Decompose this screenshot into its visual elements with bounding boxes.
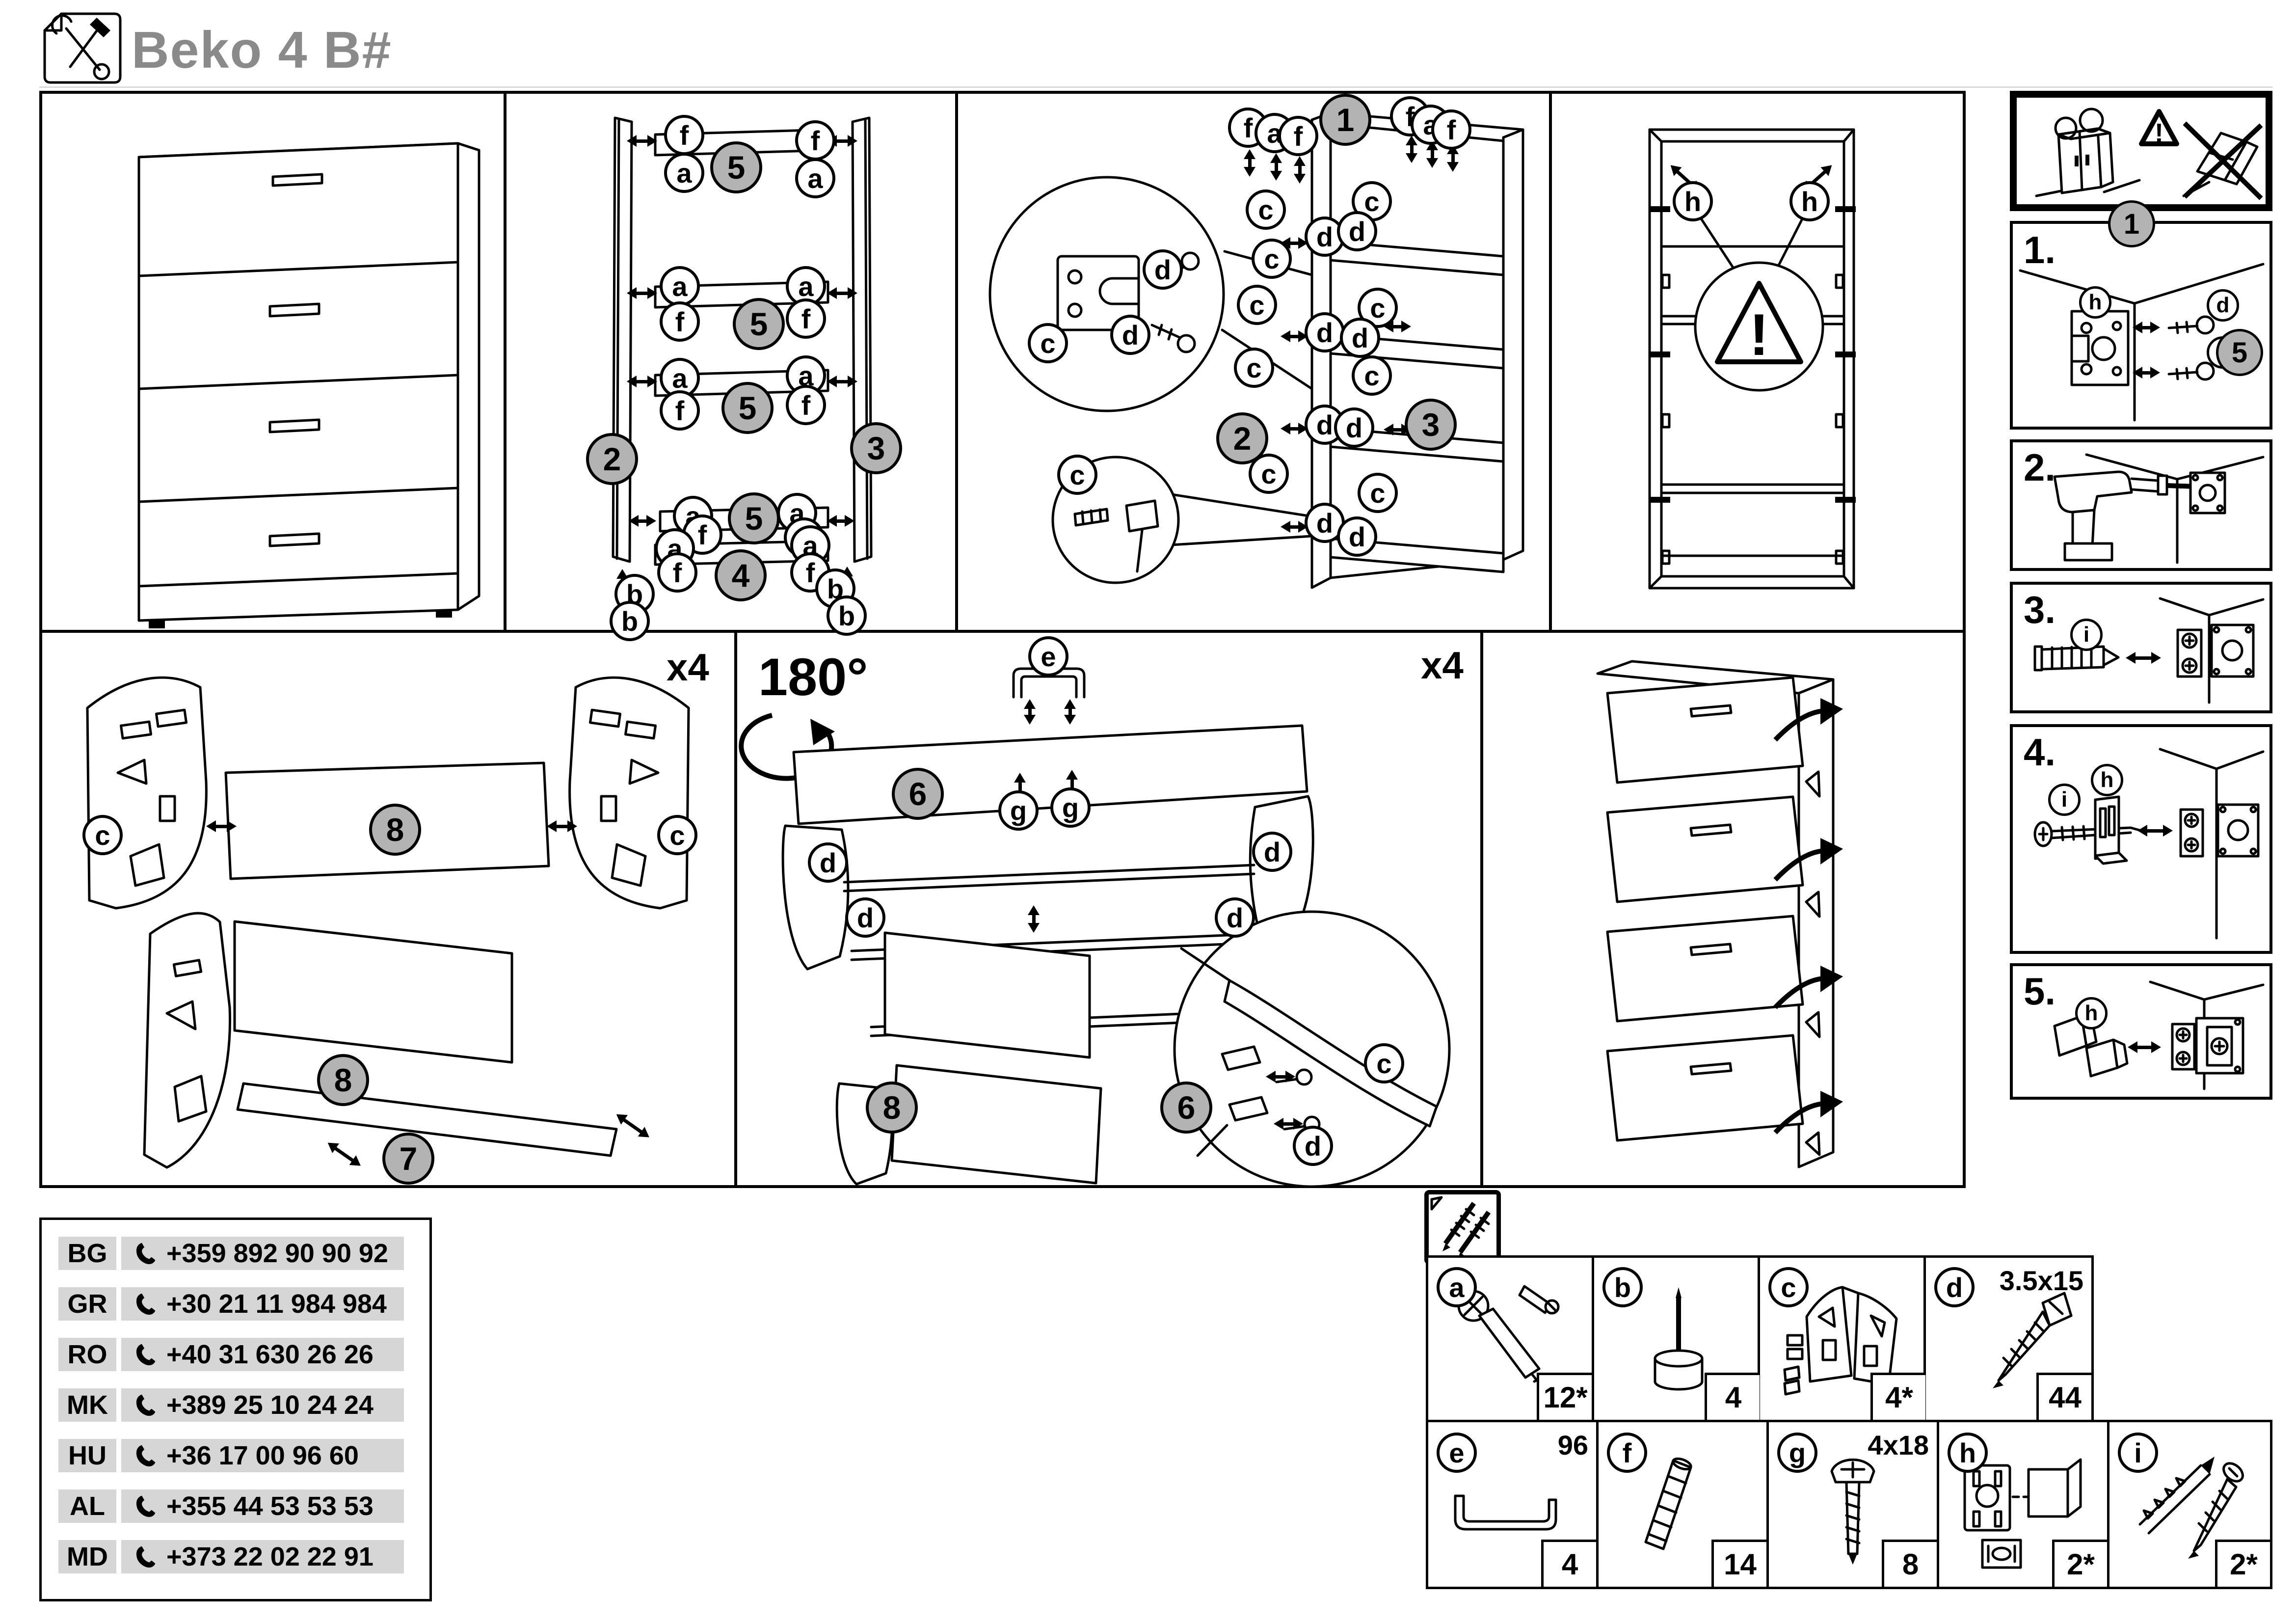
label-a-circle: a xyxy=(795,158,835,198)
grid-divider xyxy=(1549,91,1552,632)
rotate-180-label: 180° xyxy=(758,646,868,707)
label-d-circle: d xyxy=(1215,897,1255,938)
grid-divider xyxy=(1480,630,1483,1188)
arrow xyxy=(2141,829,2169,833)
arrow xyxy=(1284,427,1304,431)
part-f-qty: 14 xyxy=(1711,1540,1766,1587)
repeat-x4: x4 xyxy=(1421,643,1464,688)
label-d-circle: d xyxy=(845,897,885,938)
part-3-circle: 3 xyxy=(1405,399,1457,451)
part-cell-i: i 2* xyxy=(2107,1420,2272,1589)
label-d-circle: d xyxy=(1334,407,1374,448)
part-e-qty: 4 xyxy=(1541,1540,1596,1587)
phone-icon xyxy=(132,1291,158,1317)
arrow xyxy=(1284,525,1304,529)
anti-tip-warning-drawing xyxy=(2017,98,2266,204)
phone-number-cell: +355 44 53 53 53 xyxy=(121,1489,404,1523)
label-a-circle: a xyxy=(664,153,704,193)
part-e-size: 96 xyxy=(1558,1429,1588,1461)
label-f-circle: f xyxy=(795,120,835,161)
label-f-circle: f xyxy=(664,115,704,155)
country-code: HU xyxy=(58,1439,116,1472)
country-code: GR xyxy=(58,1287,116,1321)
label-d-circle: d xyxy=(1337,516,1377,557)
label-c-circle: c xyxy=(1364,1043,1404,1083)
phone-number: +355 44 53 53 53 xyxy=(166,1491,374,1521)
country-code: BG xyxy=(58,1237,116,1270)
phone-number: +30 21 11 984 984 xyxy=(166,1289,387,1319)
part-cell-g: g 4x18 8 xyxy=(1766,1420,1939,1589)
country-code: AL xyxy=(58,1489,116,1523)
label-c-circle: c xyxy=(1237,285,1277,325)
part-3-circle: 3 xyxy=(850,422,902,474)
instruction-sheet: Beko 4 B# xyxy=(0,0,2296,1624)
part-d-size: 3.5x15 xyxy=(2000,1265,2083,1297)
phone-number-cell: +359 892 90 90 92 xyxy=(121,1237,404,1270)
phone-icon xyxy=(132,1544,158,1570)
grid-divider xyxy=(955,91,958,632)
part-b-label: b xyxy=(1602,1267,1643,1307)
part-8-circle: 8 xyxy=(317,1054,369,1106)
repeat-x4: x4 xyxy=(667,645,709,690)
arrow xyxy=(210,825,233,828)
part-b-qty: 4 xyxy=(1705,1373,1760,1420)
panel-cabinet-front xyxy=(43,94,502,628)
phone-number: +40 31 630 26 26 xyxy=(166,1339,374,1370)
arrow xyxy=(551,825,573,828)
phone-number: +359 892 90 90 92 xyxy=(166,1238,388,1269)
part-d-qty: 44 xyxy=(2036,1373,2091,1420)
phone-number: +373 22 02 22 91 xyxy=(166,1542,374,1572)
label-a-circle: a xyxy=(660,266,700,306)
phone-icon xyxy=(132,1493,158,1519)
part-8-circle: 8 xyxy=(369,804,421,856)
panel-rear-view: h h ! xyxy=(1553,94,1962,628)
part-8-circle: 8 xyxy=(866,1082,918,1134)
part-7-circle: 7 xyxy=(382,1133,434,1185)
part-g-size: 4x18 xyxy=(1868,1429,1929,1461)
part-5-circle: 5 xyxy=(2216,329,2263,376)
label-d-circle: d xyxy=(1305,312,1345,352)
part-cell-b: b 4 xyxy=(1592,1255,1762,1422)
arrow xyxy=(1032,909,1036,929)
open-drawer-front xyxy=(1607,797,1803,902)
step-5-label: 5. xyxy=(2024,969,2056,1014)
part-e-label: e xyxy=(1437,1433,1477,1473)
label-g-circle: g xyxy=(1050,787,1091,828)
part-5-circle: 5 xyxy=(733,298,785,350)
country-code: MK xyxy=(58,1388,116,1422)
step-3-box: 3. i xyxy=(2010,582,2272,713)
phone-icon xyxy=(132,1392,158,1418)
label-f-circle: f xyxy=(1278,116,1318,156)
label-f-circle: f xyxy=(660,301,700,342)
phone-number-cell: +30 21 11 984 984 xyxy=(121,1287,404,1321)
screws-icon xyxy=(1429,1194,1496,1260)
label-i-circle: i xyxy=(2048,784,2081,816)
label-h-circle: h xyxy=(2091,764,2123,796)
label-h-circle: h xyxy=(2075,997,2108,1029)
warning-exclamation: ! xyxy=(1749,301,1769,369)
part-cell-e: e 96 4 xyxy=(1426,1420,1599,1589)
label-d-circle: d xyxy=(1340,318,1380,358)
label-c-circle: c xyxy=(657,815,697,855)
label-f-circle: f xyxy=(786,385,826,425)
open-drawers-drawing xyxy=(1485,634,1970,1185)
part-a-label: a xyxy=(1437,1267,1477,1307)
grid-divider xyxy=(504,91,507,632)
label-d-circle: d xyxy=(1252,832,1292,872)
arrow xyxy=(831,519,851,523)
drawer-parts-drawing xyxy=(43,634,733,1185)
arrow xyxy=(1270,1075,1291,1079)
arrow xyxy=(1451,148,1455,168)
open-drawer-front xyxy=(1607,1035,1803,1140)
grid-divider xyxy=(734,630,737,1188)
cabinet-front-drawing xyxy=(43,94,502,628)
arrow xyxy=(2130,656,2157,660)
label-d-circle: d xyxy=(808,842,848,883)
phone-icon xyxy=(132,1342,158,1367)
label-c-circle: c xyxy=(1057,455,1097,495)
label-c-circle: c xyxy=(1028,323,1068,363)
label-b-circle: b xyxy=(827,595,867,636)
part-a-qty: 12* xyxy=(1537,1373,1592,1420)
part-2-circle: 2 xyxy=(586,433,638,485)
part-d-label: d xyxy=(1934,1267,1975,1307)
page-title: Beko 4 B# xyxy=(132,21,392,80)
part-f-label: f xyxy=(1607,1433,1647,1473)
arrow xyxy=(2136,326,2156,329)
panel-open-drawers xyxy=(1485,634,1970,1185)
tools-document-icon xyxy=(42,11,124,85)
country-code: MD xyxy=(58,1540,116,1573)
hotline-table: BG +359 892 90 90 92 GR +30 21 11 984 98… xyxy=(39,1218,432,1601)
anti-tip-warning-box: ! xyxy=(2010,91,2272,211)
phone-number: +389 25 10 24 24 xyxy=(166,1390,374,1420)
step-5-box: 5. h xyxy=(2010,963,2272,1100)
phone-number-cell: +389 25 10 24 24 xyxy=(121,1388,404,1422)
arrow xyxy=(831,380,854,383)
label-c-circle: c xyxy=(1352,355,1392,396)
arrow xyxy=(1431,144,1434,164)
panel-carcass-exploded: f a f 1 f a f 2 3 c c c c c c c c c d d … xyxy=(960,94,1548,628)
part-h-qty: 2* xyxy=(2052,1540,2107,1587)
open-drawer-front xyxy=(1607,916,1803,1021)
label-d-circle: d xyxy=(1337,211,1377,251)
step-4-box: 4. i h xyxy=(2010,724,2272,954)
arrow xyxy=(1284,242,1304,245)
label-f-circle: f xyxy=(660,390,700,431)
country-code: RO xyxy=(58,1338,116,1371)
arrow xyxy=(1410,139,1414,159)
arrow xyxy=(2136,371,2156,375)
part-i-label: i xyxy=(2118,1433,2158,1473)
label-b-circle: b xyxy=(610,601,650,641)
step-2-label: 2. xyxy=(2024,445,2056,490)
open-drawer-front xyxy=(1607,677,1803,783)
label-d-circle: d xyxy=(1110,315,1150,355)
label-f-circle: f xyxy=(786,298,826,339)
part-5-circle: 5 xyxy=(721,382,774,434)
part-i-qty: 2* xyxy=(2215,1540,2270,1587)
arrow xyxy=(1028,703,1032,721)
part-4-circle: 4 xyxy=(715,549,767,601)
phone-icon xyxy=(132,1443,158,1468)
arrow xyxy=(631,380,653,383)
label-c-circle: c xyxy=(82,815,123,855)
label-f-circle: f xyxy=(1431,109,1471,150)
label-h-circle: h xyxy=(1673,181,1713,221)
step-1-box: 1. 1 h d d 5 xyxy=(2010,221,2272,430)
arrow xyxy=(2132,1046,2157,1049)
part-cell-f: f 14 xyxy=(1596,1420,1769,1589)
grid-divider xyxy=(39,630,1966,633)
label-e-circle: e xyxy=(1028,636,1068,677)
part-h-label: h xyxy=(1948,1433,1988,1473)
part-1-circle: 1 xyxy=(2108,200,2155,247)
part-cell-h: h 2* xyxy=(1937,1420,2109,1589)
phone-number: +36 17 00 96 60 xyxy=(166,1440,359,1471)
arrow xyxy=(1298,160,1302,180)
label-c-circle: c xyxy=(1358,473,1398,513)
hardware-icon-box xyxy=(1424,1190,1501,1265)
step-3-label: 3. xyxy=(2024,588,2056,632)
part-5-circle: 5 xyxy=(728,492,780,544)
arrow xyxy=(1248,153,1252,173)
panel-side-rails: f a 5 f a a f 5 a f a f 5 a f a f 5 a f … xyxy=(508,94,954,628)
phone-icon xyxy=(132,1241,158,1266)
part-g-label: g xyxy=(1777,1433,1817,1473)
label-f-circle: f xyxy=(657,552,697,593)
step-2-box: 2. xyxy=(2010,439,2272,571)
phone-number-cell: +40 31 630 26 26 xyxy=(121,1338,404,1371)
panel-drawer-parts: x4 c c 8 8 7 xyxy=(43,634,733,1185)
step-4-label: 4. xyxy=(2024,730,2056,775)
arrow xyxy=(1284,335,1304,338)
label-c-circle: c xyxy=(1252,239,1292,279)
label-c-circle: c xyxy=(1249,454,1289,494)
phone-number-cell: +36 17 00 96 60 xyxy=(121,1439,404,1472)
phone-number-cell: +373 22 02 22 91 xyxy=(121,1540,404,1573)
arrow xyxy=(631,139,653,143)
label-d-circle: d xyxy=(2207,289,2239,322)
part-cell-c: c 4* xyxy=(1758,1255,1928,1422)
part-c-label: c xyxy=(1768,1267,1809,1307)
arrow xyxy=(1278,1122,1299,1126)
part-cell-a: a 12* xyxy=(1426,1255,1594,1422)
label-h-circle: h xyxy=(2079,286,2111,319)
arrow xyxy=(1275,157,1278,177)
arrow xyxy=(1388,325,1407,328)
part-5-circle: 5 xyxy=(710,141,762,193)
step-1-label: 1. xyxy=(2024,228,2056,272)
label-g-circle: g xyxy=(998,790,1039,831)
arrow xyxy=(831,292,854,295)
part-c-qty: 4* xyxy=(1870,1373,1925,1420)
part-6-circle: 6 xyxy=(1160,1082,1212,1134)
label-i-circle: i xyxy=(2070,619,2103,651)
arrow xyxy=(1388,428,1407,432)
arrow xyxy=(633,519,652,523)
label-c-circle: c xyxy=(1246,189,1286,230)
part-g-qty: 8 xyxy=(1882,1540,1937,1587)
arrow xyxy=(1068,703,1072,721)
label-d-circle: d xyxy=(1143,249,1183,290)
label-d-circle: d xyxy=(1293,1126,1333,1166)
label-c-circle: c xyxy=(1234,348,1274,388)
label-h-circle: h xyxy=(1789,181,1830,221)
part-cell-d: d 3.5x15 44 xyxy=(1923,1255,2094,1422)
part-6-circle: 6 xyxy=(892,768,944,820)
warning-exclamation: ! xyxy=(2155,118,2163,148)
panel-drawer-assembly: 180° x4 e 6 g g d d d d 8 6 d c xyxy=(739,634,1479,1185)
header-rule xyxy=(39,86,2272,88)
part-1-circle: 1 xyxy=(1319,94,1371,146)
arrow xyxy=(631,292,653,295)
